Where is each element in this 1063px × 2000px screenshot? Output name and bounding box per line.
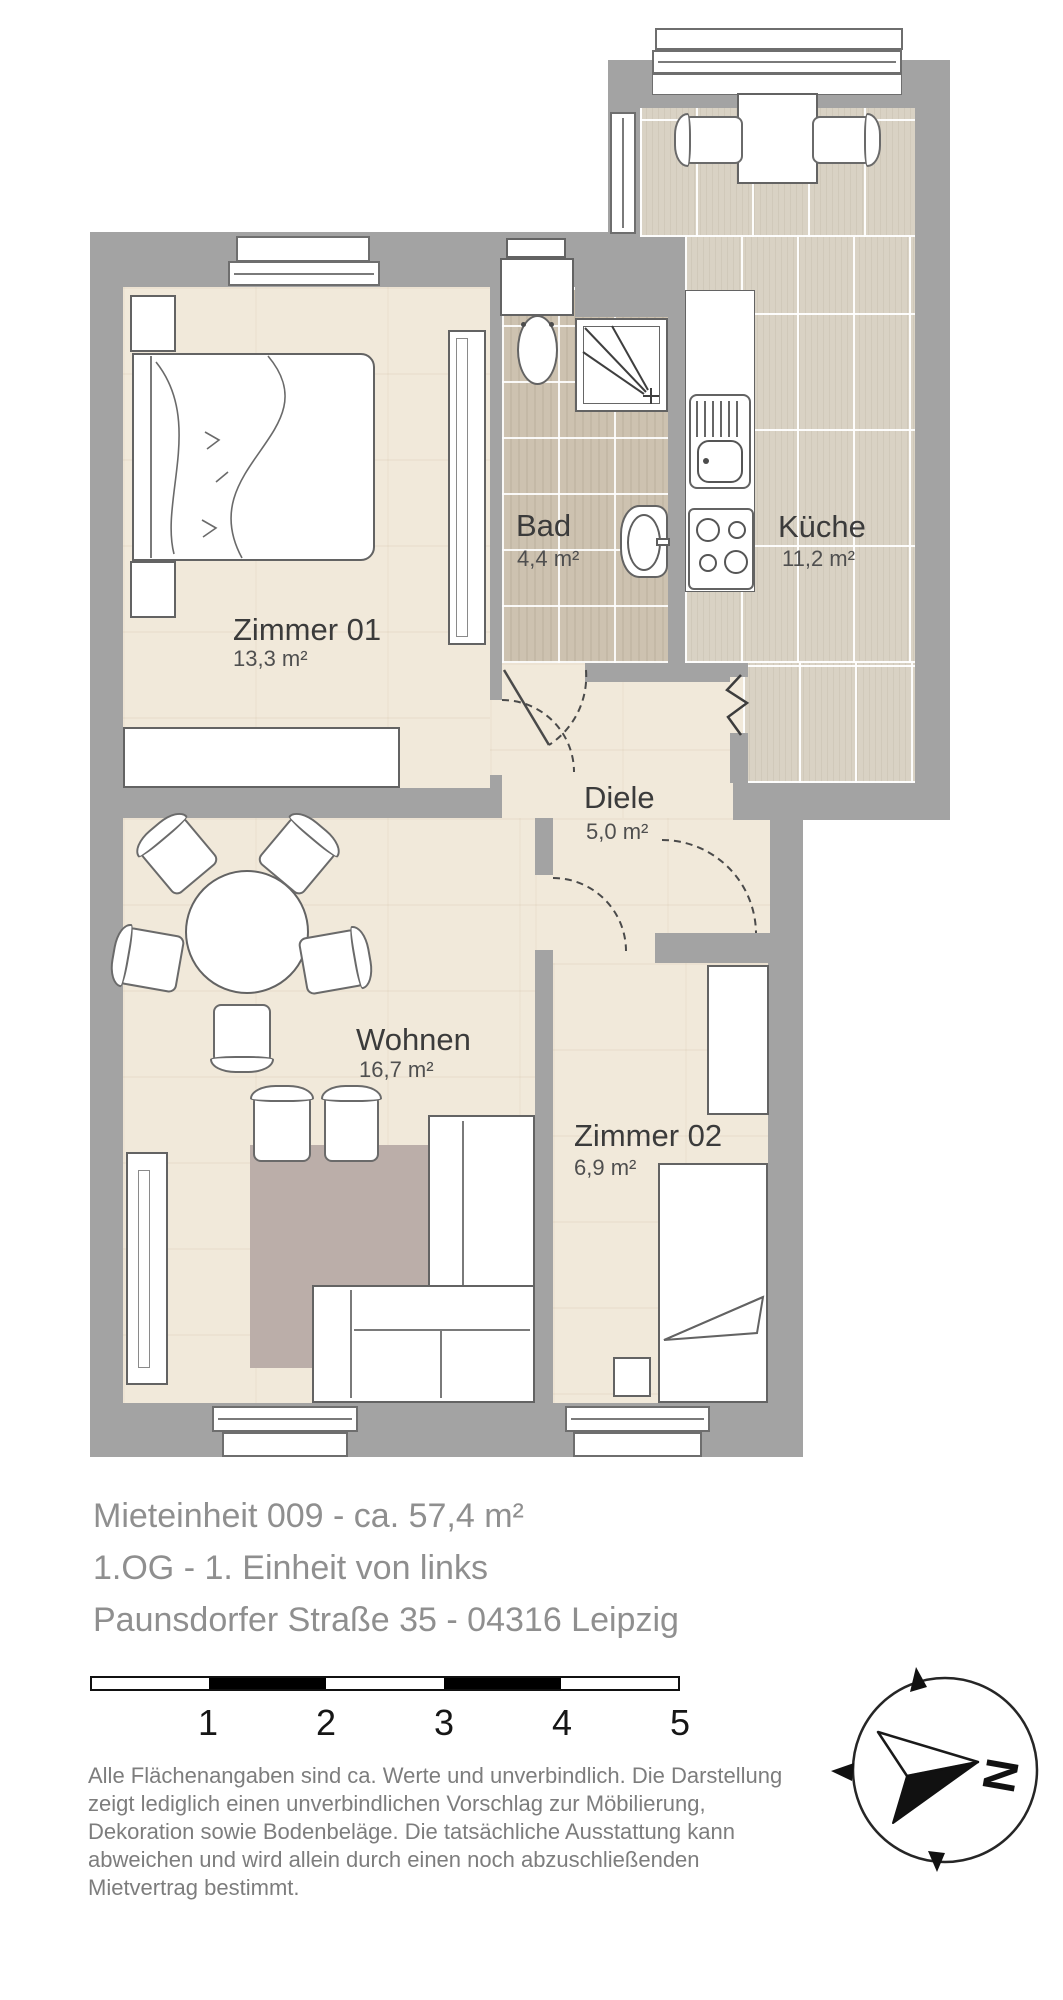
zimmer01-window-glass: [228, 261, 380, 286]
zimmer01-nightstand-top: [130, 295, 176, 352]
wall-left-outer: [90, 232, 123, 1457]
scale-tick-3: 3: [434, 1702, 454, 1744]
kueche-side-window-mullion: [622, 118, 624, 228]
title-address: Paunsdorfer Straße 35 - 04316 Leipzig: [93, 1594, 679, 1646]
scale-segment-2: [209, 1678, 326, 1689]
wohnen-radiator-slot: [138, 1170, 150, 1368]
wohnen-window-mullion: [218, 1418, 352, 1420]
zimmer01-window-frame: [236, 236, 370, 262]
compass-needle-solid: [893, 1762, 978, 1823]
kueche-chair-right: [812, 116, 872, 164]
wohnen-chair-bottom: [213, 1004, 271, 1064]
kueche-sink-unit: [689, 394, 751, 489]
zimmer01-bed: [132, 353, 375, 561]
compass-north-letter: N: [972, 1755, 1029, 1797]
toilet-hinge-right: [549, 322, 554, 327]
title-block: Mieteinheit 009 - ca. 57,4 m² 1.OG - 1. …: [93, 1490, 679, 1646]
shower: [575, 318, 668, 412]
wall-kueche-right: [915, 60, 950, 820]
diele-area: 5,0 m²: [586, 819, 648, 845]
bad-label: Bad: [516, 508, 571, 544]
wall-bad-bottom-left: [490, 663, 502, 682]
wall-zimmer01-right-upper: [490, 287, 502, 700]
toilet-cistern: [500, 258, 574, 316]
kueche-sink-drain: [703, 458, 709, 464]
zimmer01-label: Zimmer 01: [233, 612, 381, 648]
scale-segment-4: [444, 1678, 561, 1689]
zimmer02-window-sill: [573, 1432, 702, 1457]
scale-segment-5: [561, 1678, 678, 1689]
kueche-sink-drainboard: [696, 401, 744, 437]
washbasin: [620, 505, 668, 578]
sofa-armrest-line: [350, 1290, 352, 1398]
zimmer01-nightstand-bottom: [130, 561, 176, 618]
washbasin-tap: [656, 538, 670, 546]
kueche-area: 11,2 m²: [782, 546, 855, 572]
wall-bad-kueche-corner: [575, 237, 685, 317]
title-floor: 1.OG - 1. Einheit von links: [93, 1542, 679, 1594]
zimmer01-sideboard: [123, 727, 400, 788]
kueche-window-mullion: [658, 61, 896, 63]
kueche-side-window: [610, 112, 636, 234]
zimmer01-wardrobe: [448, 330, 486, 645]
scale-bar: [90, 1676, 680, 1691]
wall-bad-right: [668, 317, 685, 682]
compass-needle-outline: [878, 1732, 978, 1776]
disclaimer-line-1: Alle Flächenangaben sind ca. Werte und u…: [88, 1762, 782, 1790]
zimmer01-wardrobe-slot: [456, 338, 468, 637]
disclaimer-line-4: abweichen und wird allein durch einen no…: [88, 1846, 782, 1874]
zimmer02-window-mullion: [571, 1418, 704, 1420]
stove-burner-3: [699, 554, 717, 572]
wohnen-chair-right: [297, 928, 366, 996]
bad-area: 4,4 m²: [517, 546, 579, 572]
wohnen-chair-left: [116, 926, 185, 994]
diele-label: Diele: [584, 780, 655, 816]
wohnen-window-glass: [212, 1406, 358, 1432]
wall-wohnen-right-upper: [535, 818, 553, 875]
wall-kueche-bottom: [733, 783, 950, 820]
zimmer02-bed: [658, 1163, 768, 1403]
wohnen-armchair-right: [324, 1094, 379, 1162]
wohnen-window-sill: [222, 1432, 348, 1457]
kueche-chair-left: [683, 116, 743, 164]
kueche-window-sill: [652, 74, 902, 95]
sofa-cushion-line: [440, 1331, 442, 1398]
zimmer02-window-glass: [565, 1406, 710, 1432]
scale-tick-5: 5: [670, 1702, 690, 1744]
kueche-table: [737, 93, 818, 184]
shower-tray: [583, 326, 660, 404]
wohnen-label: Wohnen: [356, 1022, 471, 1058]
kueche-floor-south: [743, 663, 915, 783]
title-unit: Mieteinheit 009 - ca. 57,4 m²: [93, 1490, 679, 1542]
zimmer01-window-mullion: [234, 273, 374, 275]
scale-segment-3: [326, 1678, 443, 1689]
wall-zimmer02-top: [655, 933, 770, 963]
wohnen-armchair-left: [253, 1094, 311, 1162]
disclaimer-line-3: Dekoration sowie Bodenbeläge. Die tatsäc…: [88, 1818, 782, 1846]
compass: N: [831, 1667, 1037, 1872]
compass-tick-top: [910, 1667, 927, 1692]
kueche-label: Küche: [778, 509, 866, 545]
stove-burner-4: [724, 550, 748, 574]
sofa-back-line: [354, 1329, 530, 1331]
wall-east: [770, 818, 803, 963]
compass-tick-bottom: [928, 1851, 945, 1872]
compass-ring: [853, 1678, 1037, 1862]
disclaimer-line-2: zeigt lediglich einen unverbindlichen Vo…: [88, 1790, 782, 1818]
stove-burner-1: [696, 518, 720, 542]
wohnen-armchair-right-back: [321, 1085, 382, 1102]
zimmer02-wardrobe: [707, 965, 769, 1115]
wohnen-radiator: [126, 1152, 168, 1385]
wall-bad-bottom-right: [585, 663, 730, 682]
scale-tick-2: 2: [316, 1702, 336, 1744]
zimmer01-bed-headboard-line: [150, 356, 152, 558]
disclaimer: Alle Flächenangaben sind ca. Werte und u…: [88, 1762, 782, 1902]
sofa-seat: [312, 1285, 535, 1403]
kueche-window-frame: [652, 50, 902, 74]
compass-tick-left: [831, 1763, 854, 1781]
zimmer01-area: 13,3 m²: [233, 646, 308, 672]
zimmer02-label: Zimmer 02: [574, 1118, 722, 1154]
wohnen-area: 16,7 m²: [359, 1057, 434, 1083]
wall-zimmer02-right: [768, 963, 803, 1457]
zimmer02-area: 6,9 m²: [574, 1155, 636, 1181]
wohnen-armchair-left-back: [250, 1085, 314, 1102]
toilet-cistern-top: [506, 238, 566, 258]
kueche-chair-left-back: [674, 113, 691, 167]
kueche-stove: [688, 508, 754, 590]
disclaimer-line-5: Mietvertrag bestimmt.: [88, 1874, 782, 1902]
scale-tick-1: 1: [198, 1702, 218, 1744]
balcony-rail: [655, 28, 903, 50]
floorplan-page: Zimmer 01 13,3 m² Bad 4,4 m² Küche 11,2 …: [0, 0, 1063, 2000]
scale-segment-1: [92, 1678, 209, 1689]
wall-diele-kueche-upper: [730, 663, 748, 677]
zimmer02-stool: [613, 1357, 651, 1397]
wall-diele-kueche-lower: [730, 733, 748, 783]
toilet-hinge-left: [521, 322, 526, 327]
stove-burner-2: [728, 521, 746, 539]
wall-wohnen-right-lower: [535, 950, 553, 1403]
scale-tick-4: 4: [552, 1702, 572, 1744]
